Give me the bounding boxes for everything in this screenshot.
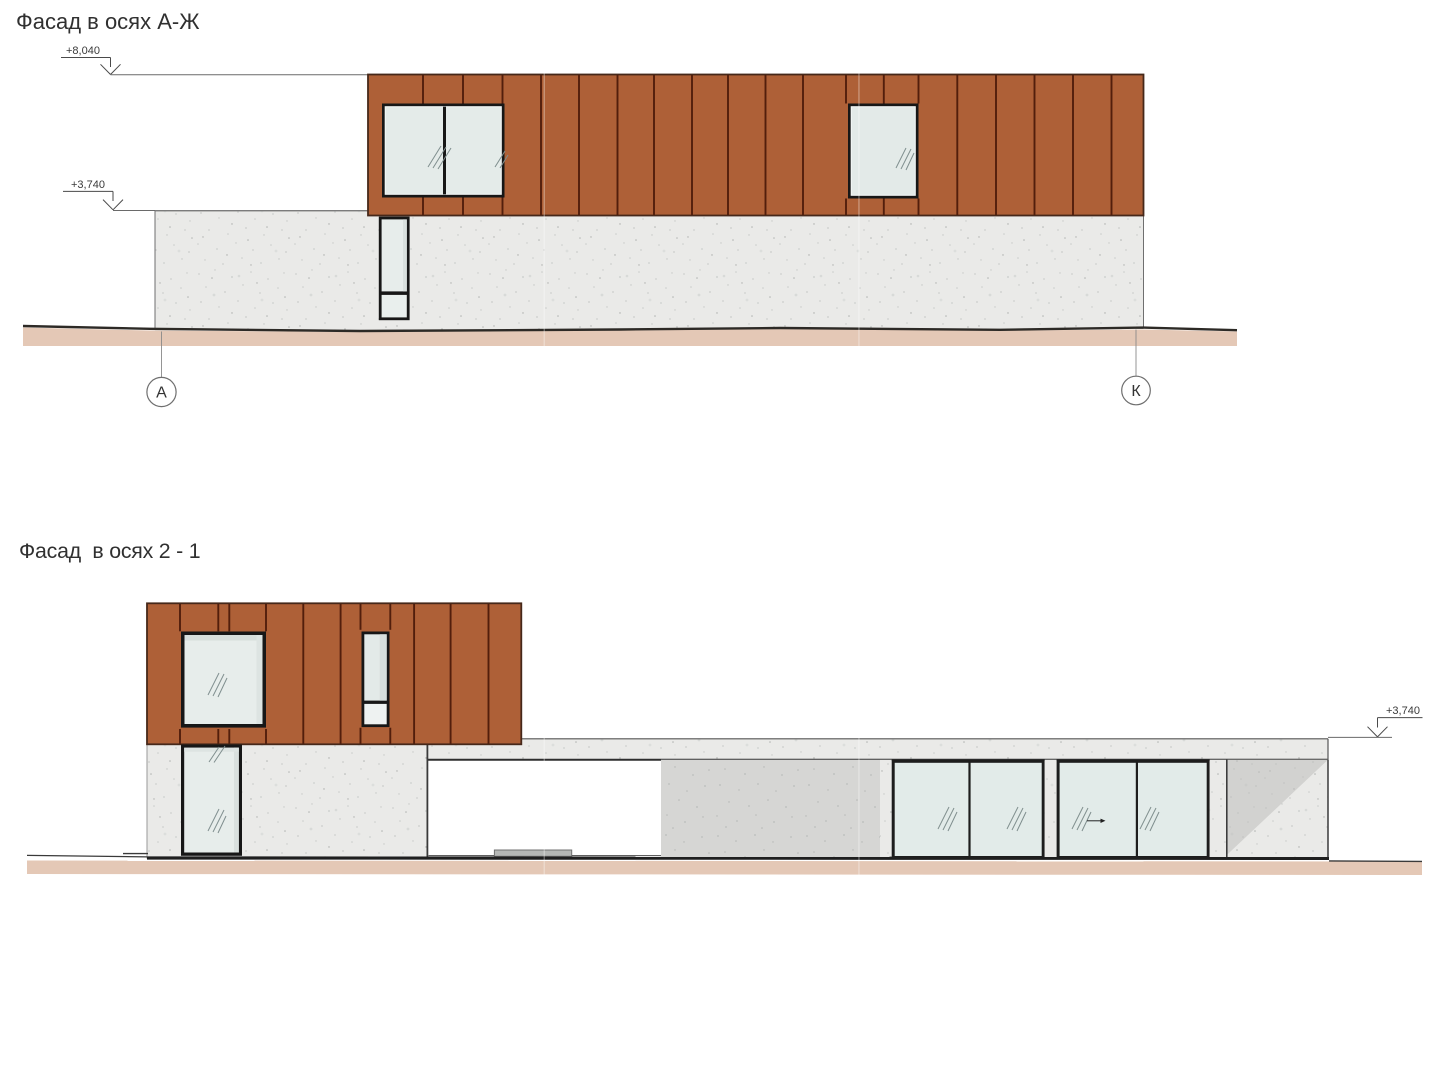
svg-text:Фасад в осях А-Ж: Фасад в осях А-Ж [16, 9, 200, 34]
svg-text:+3,740: +3,740 [71, 179, 105, 191]
svg-text:+3,740: +3,740 [1386, 705, 1420, 717]
svg-text:Фасад в осях 2 - 1: Фасад в осях 2 - 1 [19, 539, 200, 563]
svg-text:К: К [1131, 383, 1141, 400]
svg-text:+8,040: +8,040 [66, 45, 100, 57]
svg-text:А: А [156, 385, 167, 402]
